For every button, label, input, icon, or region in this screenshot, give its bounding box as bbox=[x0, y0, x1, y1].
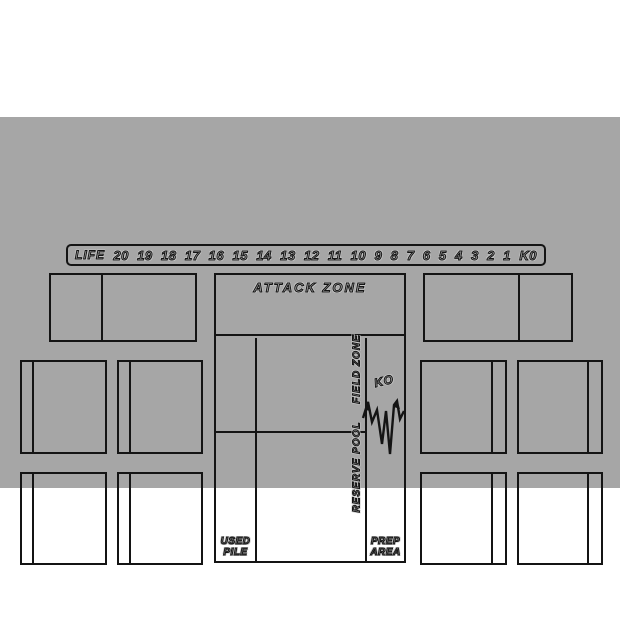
left-card-slot-3-strip bbox=[22, 474, 34, 563]
right-card-slot-3[interactable] bbox=[420, 472, 507, 565]
reserve-pool-label: RESERVE POOL bbox=[352, 422, 363, 513]
playmat-page: LIFE 2019181716151413121110987654321K0 bbox=[0, 0, 620, 620]
life-value-8[interactable]: 8 bbox=[391, 248, 399, 263]
right-card-slot-1[interactable] bbox=[420, 360, 507, 454]
life-value-18[interactable]: 18 bbox=[161, 248, 176, 263]
top-left-deck-zone[interactable] bbox=[49, 273, 197, 342]
life-value-17[interactable]: 17 bbox=[185, 248, 200, 263]
left-card-slot-4-strip bbox=[119, 474, 131, 563]
left-card-slot-1[interactable] bbox=[20, 360, 107, 454]
right-card-slot-2[interactable] bbox=[517, 360, 603, 454]
left-card-slot-3[interactable] bbox=[20, 472, 107, 565]
life-value-7[interactable]: 7 bbox=[407, 248, 415, 263]
life-value-15[interactable]: 15 bbox=[233, 248, 248, 263]
life-value-4[interactable]: 4 bbox=[455, 248, 463, 263]
life-value-1[interactable]: 1 bbox=[503, 248, 511, 263]
right-card-slot-4[interactable] bbox=[517, 472, 603, 565]
life-value-9[interactable]: 9 bbox=[375, 248, 383, 263]
field-reserve-divider bbox=[216, 431, 367, 433]
playmat: LIFE 2019181716151413121110987654321K0 bbox=[0, 117, 620, 488]
right-card-slot-2-strip bbox=[587, 362, 601, 452]
top-right-deck-zone[interactable] bbox=[423, 273, 573, 342]
left-card-slot-4[interactable] bbox=[117, 472, 203, 565]
left-card-slot-2[interactable] bbox=[117, 360, 203, 454]
life-value-6[interactable]: 6 bbox=[423, 248, 431, 263]
attack-zone-label: ATTACK ZONE bbox=[253, 280, 366, 334]
life-track[interactable]: LIFE 2019181716151413121110987654321K0 bbox=[66, 244, 546, 266]
top-right-deck-divider bbox=[518, 275, 571, 340]
used-pile-label: USED PILE bbox=[216, 536, 255, 558]
life-label: LIFE bbox=[75, 248, 105, 262]
life-value-2[interactable]: 2 bbox=[487, 248, 495, 263]
life-value-10[interactable]: 10 bbox=[351, 248, 366, 263]
life-value-16[interactable]: 16 bbox=[209, 248, 224, 263]
life-value-5[interactable]: 5 bbox=[439, 248, 447, 263]
prep-area-label: PREP AREA bbox=[367, 536, 404, 558]
life-value-11[interactable]: 11 bbox=[328, 248, 343, 263]
attack-zone[interactable]: ATTACK ZONE bbox=[216, 275, 404, 336]
ko-burst-tear-icon bbox=[363, 397, 404, 459]
life-value-12[interactable]: 12 bbox=[304, 248, 319, 263]
life-value-20[interactable]: 20 bbox=[113, 248, 128, 263]
left-card-slot-2-strip bbox=[119, 362, 131, 452]
life-value-19[interactable]: 19 bbox=[137, 248, 152, 263]
life-value-14[interactable]: 14 bbox=[256, 248, 271, 263]
top-left-deck-divider bbox=[51, 275, 103, 340]
life-value-K0[interactable]: K0 bbox=[519, 248, 537, 263]
life-value-3[interactable]: 3 bbox=[471, 248, 479, 263]
left-card-slot-1-strip bbox=[22, 362, 34, 452]
right-card-slot-3-strip bbox=[491, 474, 505, 563]
life-value-13[interactable]: 13 bbox=[280, 248, 295, 263]
right-card-slot-4-strip bbox=[587, 474, 601, 563]
right-card-slot-1-strip bbox=[491, 362, 505, 452]
field-zone-label: FIELD ZONE bbox=[352, 334, 363, 403]
central-play-area: ATTACK ZONE USED PILE PREP AREA FIELD ZO… bbox=[214, 273, 406, 563]
used-pile-zone[interactable]: USED PILE bbox=[216, 338, 257, 561]
